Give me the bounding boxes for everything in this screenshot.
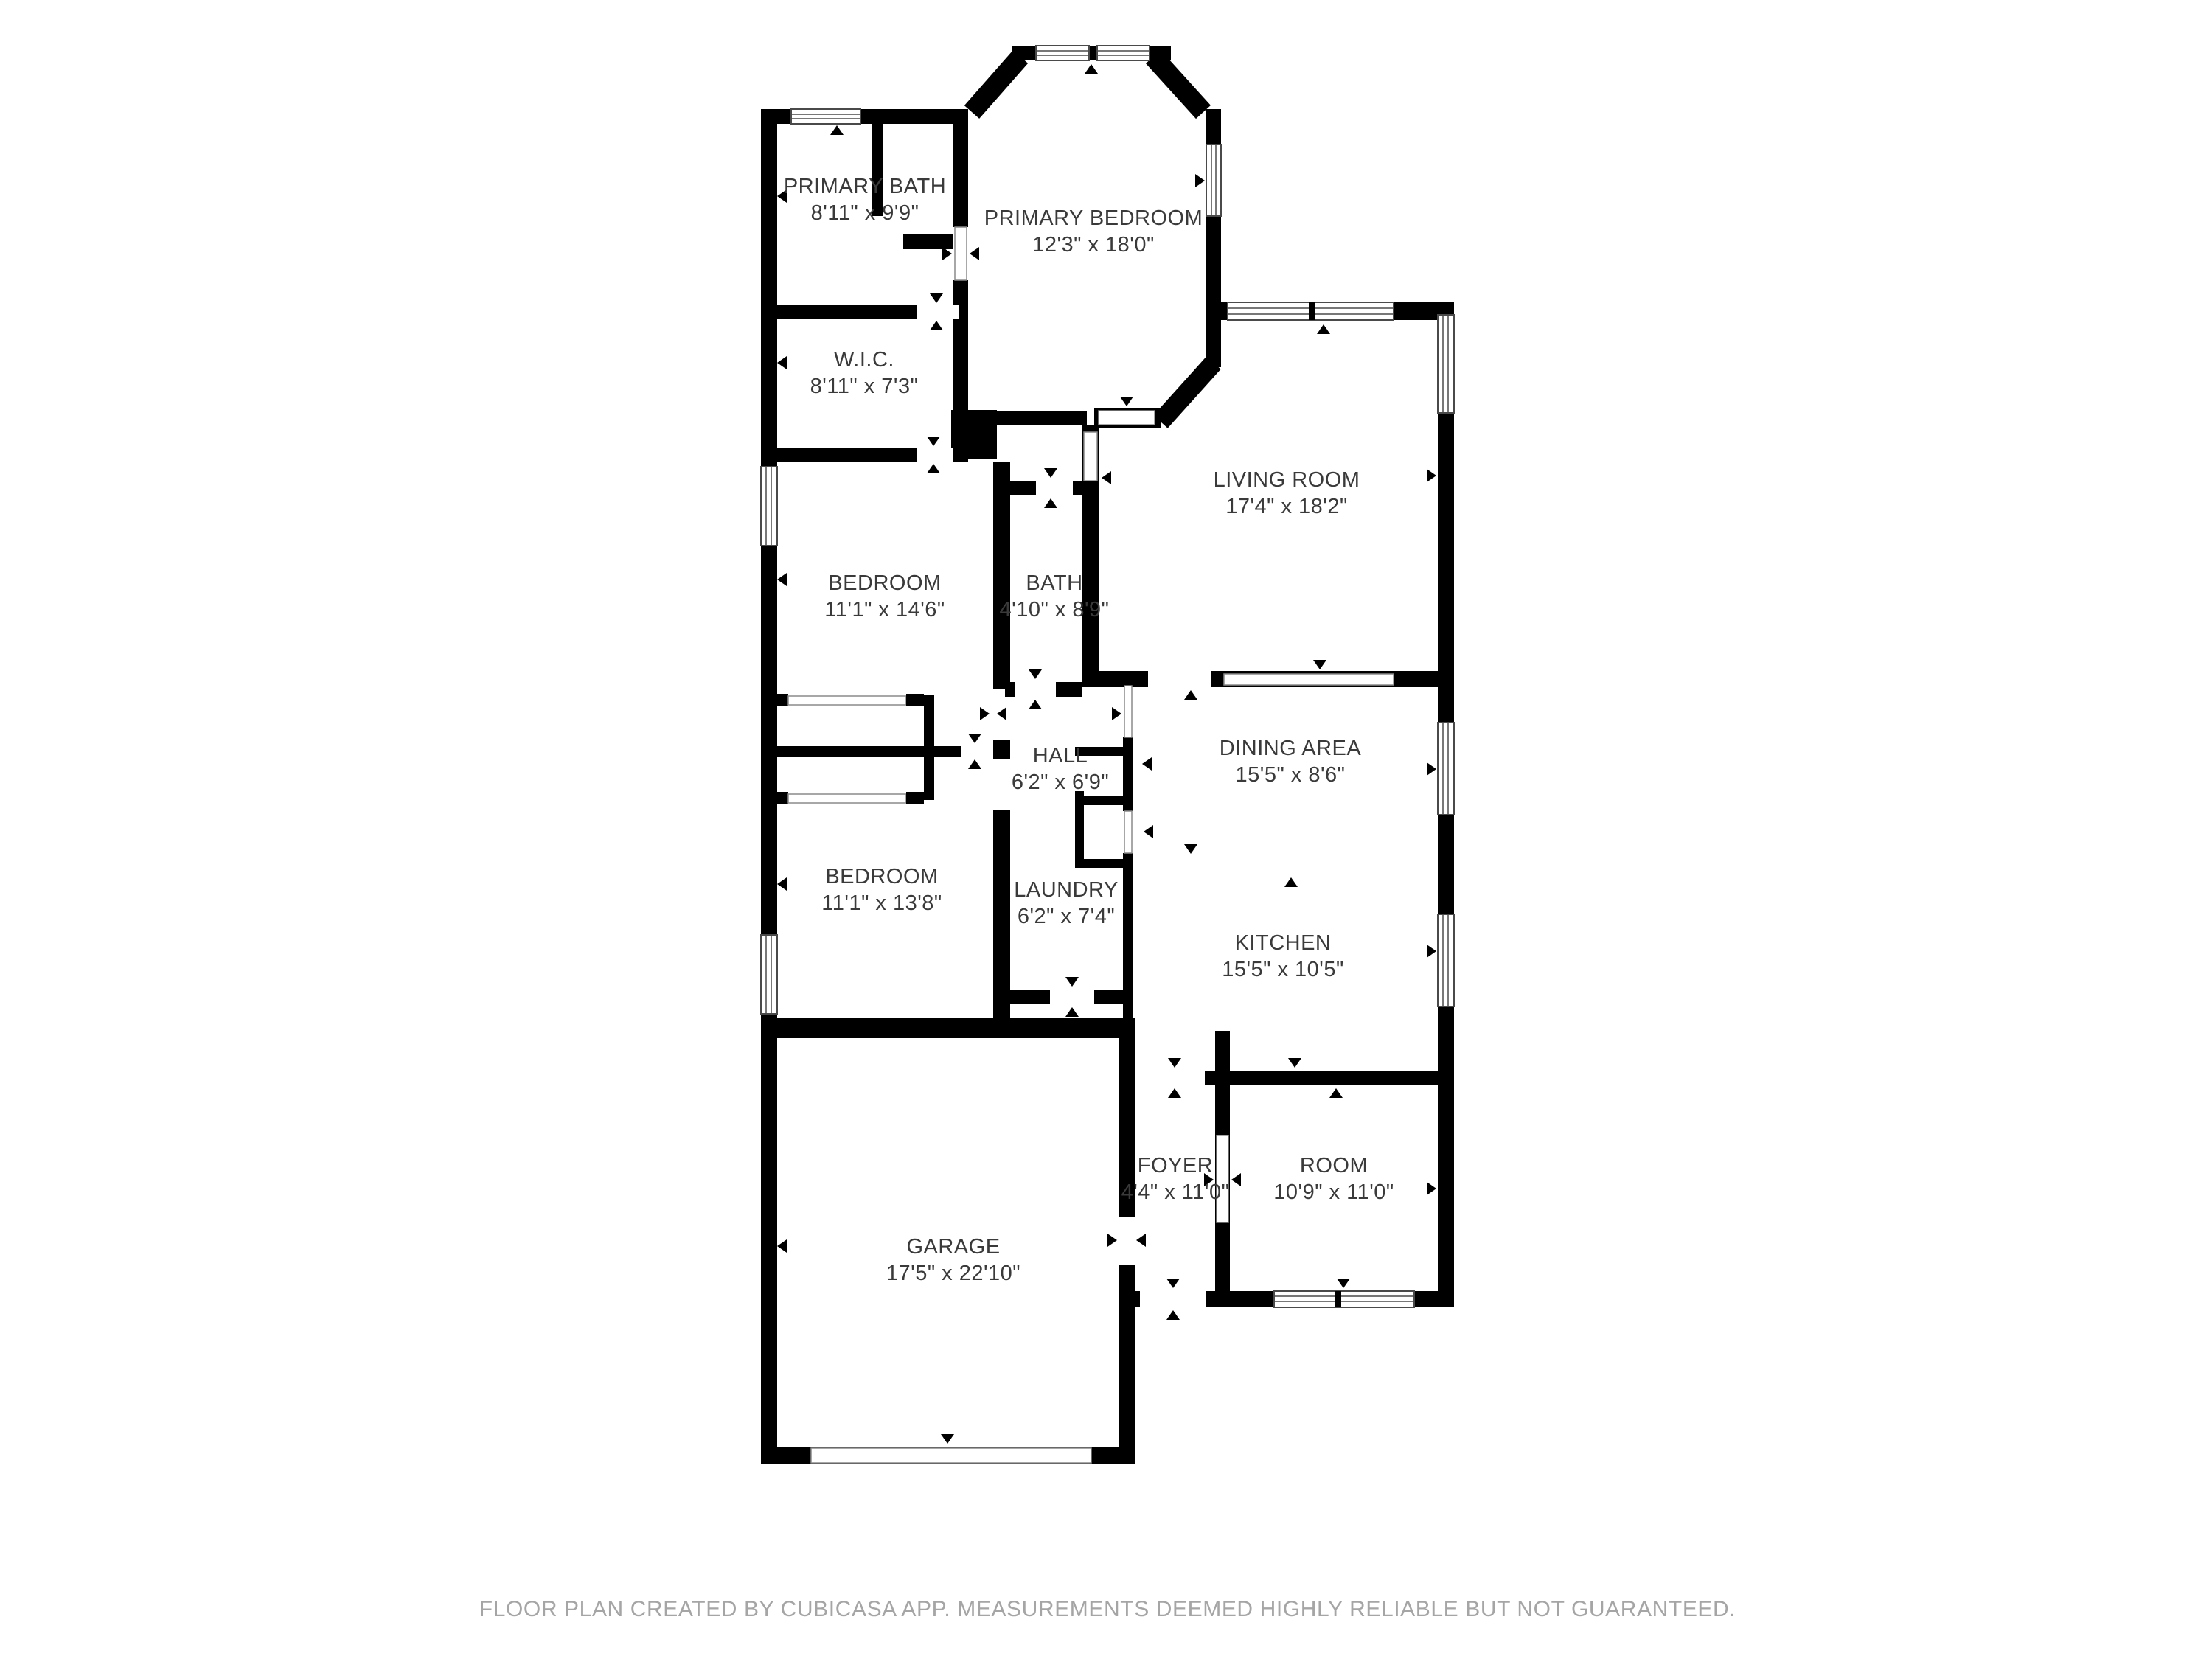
down-arrow-icon [1044,468,1057,478]
window [761,467,777,546]
left-arrow-icon [1144,825,1153,838]
right-arrow-icon [1427,1182,1436,1195]
floor-plan-canvas: PRIMARY BATH8'11" x 9'9" PRIMARY BEDROOM… [0,0,2212,1659]
right-arrow-icon [1112,707,1121,720]
down-arrow-icon [1120,397,1133,406]
left-arrow-icon [1231,1173,1241,1186]
up-arrow-icon [1085,64,1098,74]
room-label-garage: GARAGE17'5" x 22'10" [886,1235,1020,1285]
left-arrow-icon [777,1239,787,1253]
right-arrow-icon [1195,174,1205,187]
room-label-room: ROOM10'9" x 11'0" [1273,1154,1394,1204]
up-arrow-icon [927,464,940,473]
down-arrow-icon [1065,977,1079,987]
room-label-wic: W.I.C.8'11" x 7'3" [810,348,919,398]
down-arrow-icon [1184,844,1197,854]
window [1036,46,1089,60]
down-arrow-icon [1313,660,1326,669]
up-arrow-icon [1065,1007,1079,1017]
up-arrow-icon [1184,690,1197,700]
up-arrow-icon [968,759,981,769]
window [1228,302,1394,320]
room-label-foyer: FOYER4'4" x 11'0" [1121,1154,1230,1204]
window [1097,46,1150,60]
window [1438,315,1454,413]
window [1206,145,1221,216]
right-arrow-icon [1427,469,1436,482]
left-arrow-icon [1136,1234,1146,1247]
right-arrow-icon [1427,762,1436,776]
left-arrow-icon [997,707,1006,720]
down-arrow-icon [1288,1058,1301,1068]
up-arrow-icon [1284,877,1298,887]
left-arrow-icon [970,247,979,260]
room-label-bedroom-2: BEDROOM11'1" x 13'8" [821,865,942,915]
window [1274,1291,1414,1307]
room-label-kitchen: KITCHEN15'5" x 10'5" [1222,931,1344,981]
down-arrow-icon [941,1434,954,1444]
window [1438,914,1454,1006]
up-arrow-icon [1044,498,1057,508]
down-arrow-icon [1029,669,1042,679]
floor-plan-page: PRIMARY BATH8'11" x 9'9" PRIMARY BEDROOM… [0,0,2212,1659]
down-arrow-icon [968,734,981,743]
down-arrow-icon [1168,1058,1181,1068]
up-arrow-icon [1168,1088,1181,1098]
up-arrow-icon [830,125,844,135]
left-arrow-icon [1142,757,1152,771]
left-arrow-icon [1102,471,1111,484]
up-arrow-icon [1029,700,1042,709]
up-arrow-icon [1166,1310,1180,1320]
window [1438,723,1454,815]
room-label-primary-bedroom: PRIMARY BEDROOM12'3" x 18'0" [984,206,1203,257]
up-arrow-icon [930,321,943,330]
down-arrow-icon [930,293,943,303]
down-arrow-icon [1166,1279,1180,1288]
footer-disclaimer: FLOOR PLAN CREATED BY CUBICASA APP. MEAS… [479,1597,1736,1621]
right-arrow-icon [1427,945,1436,958]
room-label-living-room: LIVING ROOM17'4" x 18'2" [1214,468,1360,518]
room-label-primary-bath: PRIMARY BATH8'11" x 9'9" [784,175,946,225]
left-arrow-icon [777,573,787,586]
room-label-dining-area: DINING AREA15'5" x 8'6" [1220,737,1362,787]
down-arrow-icon [1337,1279,1350,1288]
room-labels: PRIMARY BATH8'11" x 9'9" PRIMARY BEDROOM… [784,175,1394,1285]
garage-door [811,1448,1091,1463]
up-arrow-icon [1317,324,1330,334]
up-arrow-icon [1329,1088,1343,1098]
right-arrow-icon [1107,1234,1117,1247]
window [761,935,777,1014]
room-label-bedroom-1: BEDROOM11'1" x 14'6" [824,571,945,622]
left-arrow-icon [777,877,787,891]
right-arrow-icon [980,707,990,720]
left-arrow-icon [777,356,787,369]
window [791,109,860,124]
down-arrow-icon [927,437,940,446]
room-label-laundry: LAUNDRY6'2" x 7'4" [1014,878,1119,928]
